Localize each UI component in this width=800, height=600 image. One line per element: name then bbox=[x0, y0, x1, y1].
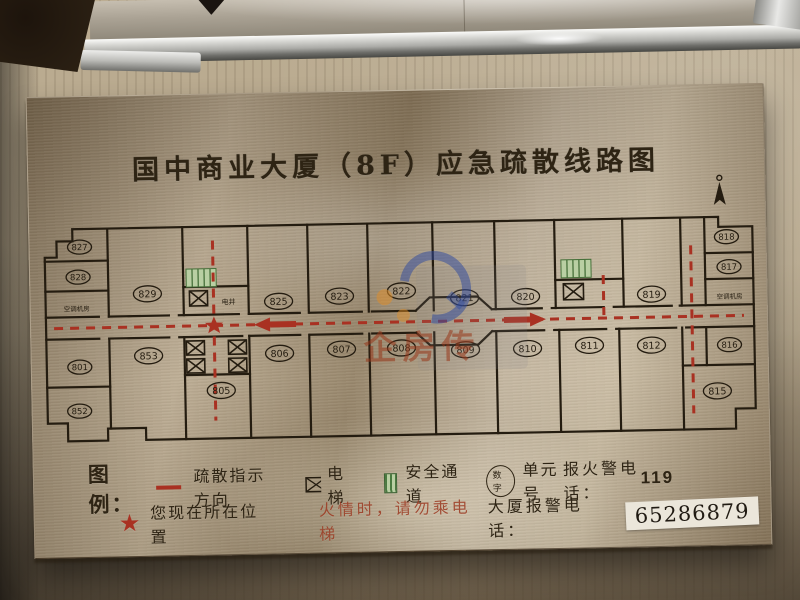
svg-text:807: 807 bbox=[332, 344, 350, 355]
evacuation-plaque: 国中商业大厦（8F）应急疏散线路图 bbox=[26, 83, 773, 559]
building-phone: 大厦报警电话： 65286879 bbox=[488, 488, 760, 541]
watermark: 企房传 bbox=[360, 247, 530, 376]
watermark-dot bbox=[376, 289, 392, 305]
svg-text:818: 818 bbox=[718, 233, 734, 243]
svg-text:819: 819 bbox=[642, 289, 660, 300]
svg-text:827: 827 bbox=[71, 243, 87, 253]
svg-text:829: 829 bbox=[138, 289, 156, 300]
shaft-label: 电井 bbox=[222, 297, 236, 306]
chrome-corner-left bbox=[80, 50, 200, 73]
svg-text:806: 806 bbox=[270, 349, 288, 360]
svg-text:825: 825 bbox=[269, 297, 287, 308]
svg-text:816: 816 bbox=[721, 341, 737, 351]
plaque-title: 国中商业大厦（8F）应急疏散线路图 bbox=[28, 136, 765, 189]
svg-text:811: 811 bbox=[580, 341, 598, 352]
location-label: 您现在所在位置 bbox=[150, 497, 275, 547]
fire-phone-number: 119 bbox=[640, 468, 674, 489]
north-arrow-icon bbox=[708, 173, 731, 209]
safe-passage-legend-icon bbox=[384, 473, 398, 493]
ac-room-left-label: 空调机房 bbox=[64, 304, 90, 313]
svg-text:817: 817 bbox=[721, 262, 737, 272]
evac-direction-swatch bbox=[156, 485, 182, 489]
watermark-text: 企房传 bbox=[363, 319, 481, 369]
svg-text:805: 805 bbox=[212, 386, 230, 397]
svg-text:815: 815 bbox=[708, 386, 726, 397]
svg-text:801: 801 bbox=[72, 363, 88, 373]
elevator-legend-icon bbox=[305, 477, 322, 493]
svg-text:812: 812 bbox=[642, 340, 660, 351]
fire-warning-text: 火情时，请勿乘电梯 bbox=[318, 493, 488, 544]
svg-text:828: 828 bbox=[70, 273, 86, 283]
svg-text:823: 823 bbox=[330, 291, 348, 302]
ac-room-right-label: 空调机房 bbox=[716, 291, 742, 300]
location-star-icon: ★ bbox=[119, 512, 141, 536]
svg-text:853: 853 bbox=[139, 351, 157, 362]
svg-text:852: 852 bbox=[71, 407, 87, 417]
building-phone-label: 大厦报警电话： bbox=[488, 491, 619, 541]
building-phone-number-sticker: 65286879 bbox=[625, 496, 759, 530]
